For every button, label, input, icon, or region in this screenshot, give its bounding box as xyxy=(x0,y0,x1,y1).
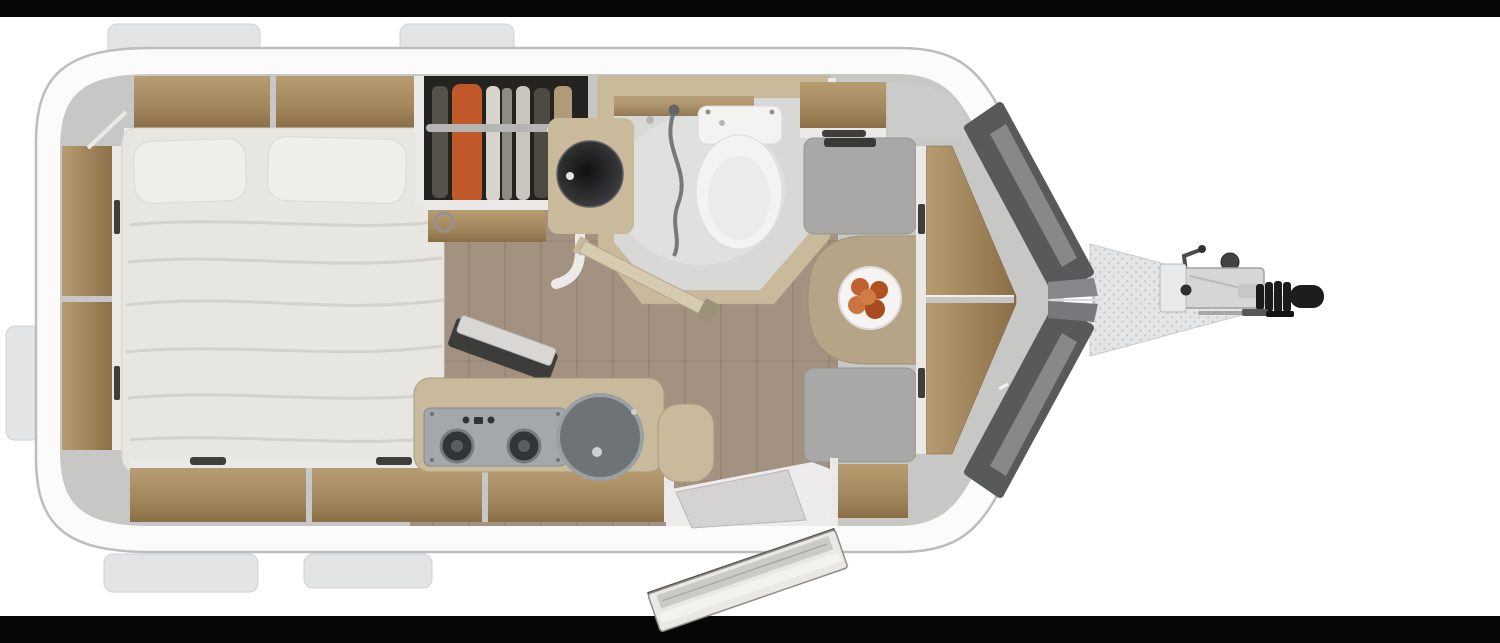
kitchen-sink xyxy=(558,395,642,479)
shelf-latch xyxy=(114,366,120,400)
window-tab-bottom-center xyxy=(304,554,432,588)
cabinet-divider xyxy=(306,468,312,522)
v-seat-edge xyxy=(916,146,926,454)
cabinet-handle xyxy=(190,457,226,465)
floorplan-canvas xyxy=(0,0,1500,643)
hitch-assembly xyxy=(1160,245,1324,317)
seat-latch xyxy=(918,204,925,234)
cabinet-divider xyxy=(270,76,276,128)
letterbox-bottom xyxy=(0,616,1500,643)
rod-sleeve xyxy=(1242,309,1268,316)
bench-seat-bottom xyxy=(804,368,916,462)
cabinet-end-cap xyxy=(830,458,838,518)
floorplan-svg xyxy=(0,0,1500,643)
stove-screw xyxy=(556,458,560,462)
coupler-bolt xyxy=(1181,285,1192,296)
stove-screw xyxy=(556,412,560,416)
bench-seat-top xyxy=(804,138,916,234)
counter-end xyxy=(658,404,714,482)
shower-head xyxy=(669,105,680,116)
rod-grip xyxy=(1266,311,1294,317)
sink-drain xyxy=(592,447,602,457)
stove-control xyxy=(474,417,483,424)
bench-handle xyxy=(824,138,876,147)
dinette-lower-cabinet xyxy=(838,464,908,518)
window-tab-bottom-left xyxy=(104,554,258,592)
drain xyxy=(719,120,725,126)
hitch-handle xyxy=(1290,285,1324,308)
pillow-left xyxy=(133,138,247,204)
drain xyxy=(646,116,654,124)
orange-garment xyxy=(452,84,482,204)
crank-knob xyxy=(1198,245,1206,253)
cabinet-handle xyxy=(822,130,866,137)
garment xyxy=(516,86,530,200)
garment xyxy=(432,86,448,198)
toilet-bolt xyxy=(706,110,711,115)
toilet-seat xyxy=(708,156,770,240)
stove-control xyxy=(463,417,470,424)
garment xyxy=(502,88,512,200)
stove-screw xyxy=(430,458,434,462)
garment xyxy=(534,88,550,198)
pillow-right xyxy=(267,136,407,204)
stove-control xyxy=(488,417,495,424)
rear-shelf-divider xyxy=(62,296,114,302)
letterbox-top xyxy=(0,0,1500,17)
seat-latch xyxy=(918,368,925,398)
toilet-bolt xyxy=(770,110,775,115)
shelf-latch xyxy=(114,200,120,234)
burner-cap xyxy=(518,440,530,452)
rear-shelf-edge xyxy=(112,146,122,450)
wardrobe-wall xyxy=(414,76,424,206)
garment xyxy=(486,86,500,202)
washbasin-unit xyxy=(548,118,634,234)
cabinet-divider xyxy=(482,468,488,522)
cabinet-handle xyxy=(376,457,412,465)
dinette-overhead-cabinet xyxy=(800,82,886,128)
stove-screw xyxy=(430,412,434,416)
basin-faucet xyxy=(566,172,574,180)
burner-cap xyxy=(451,440,463,452)
sink-faucet xyxy=(631,409,637,415)
